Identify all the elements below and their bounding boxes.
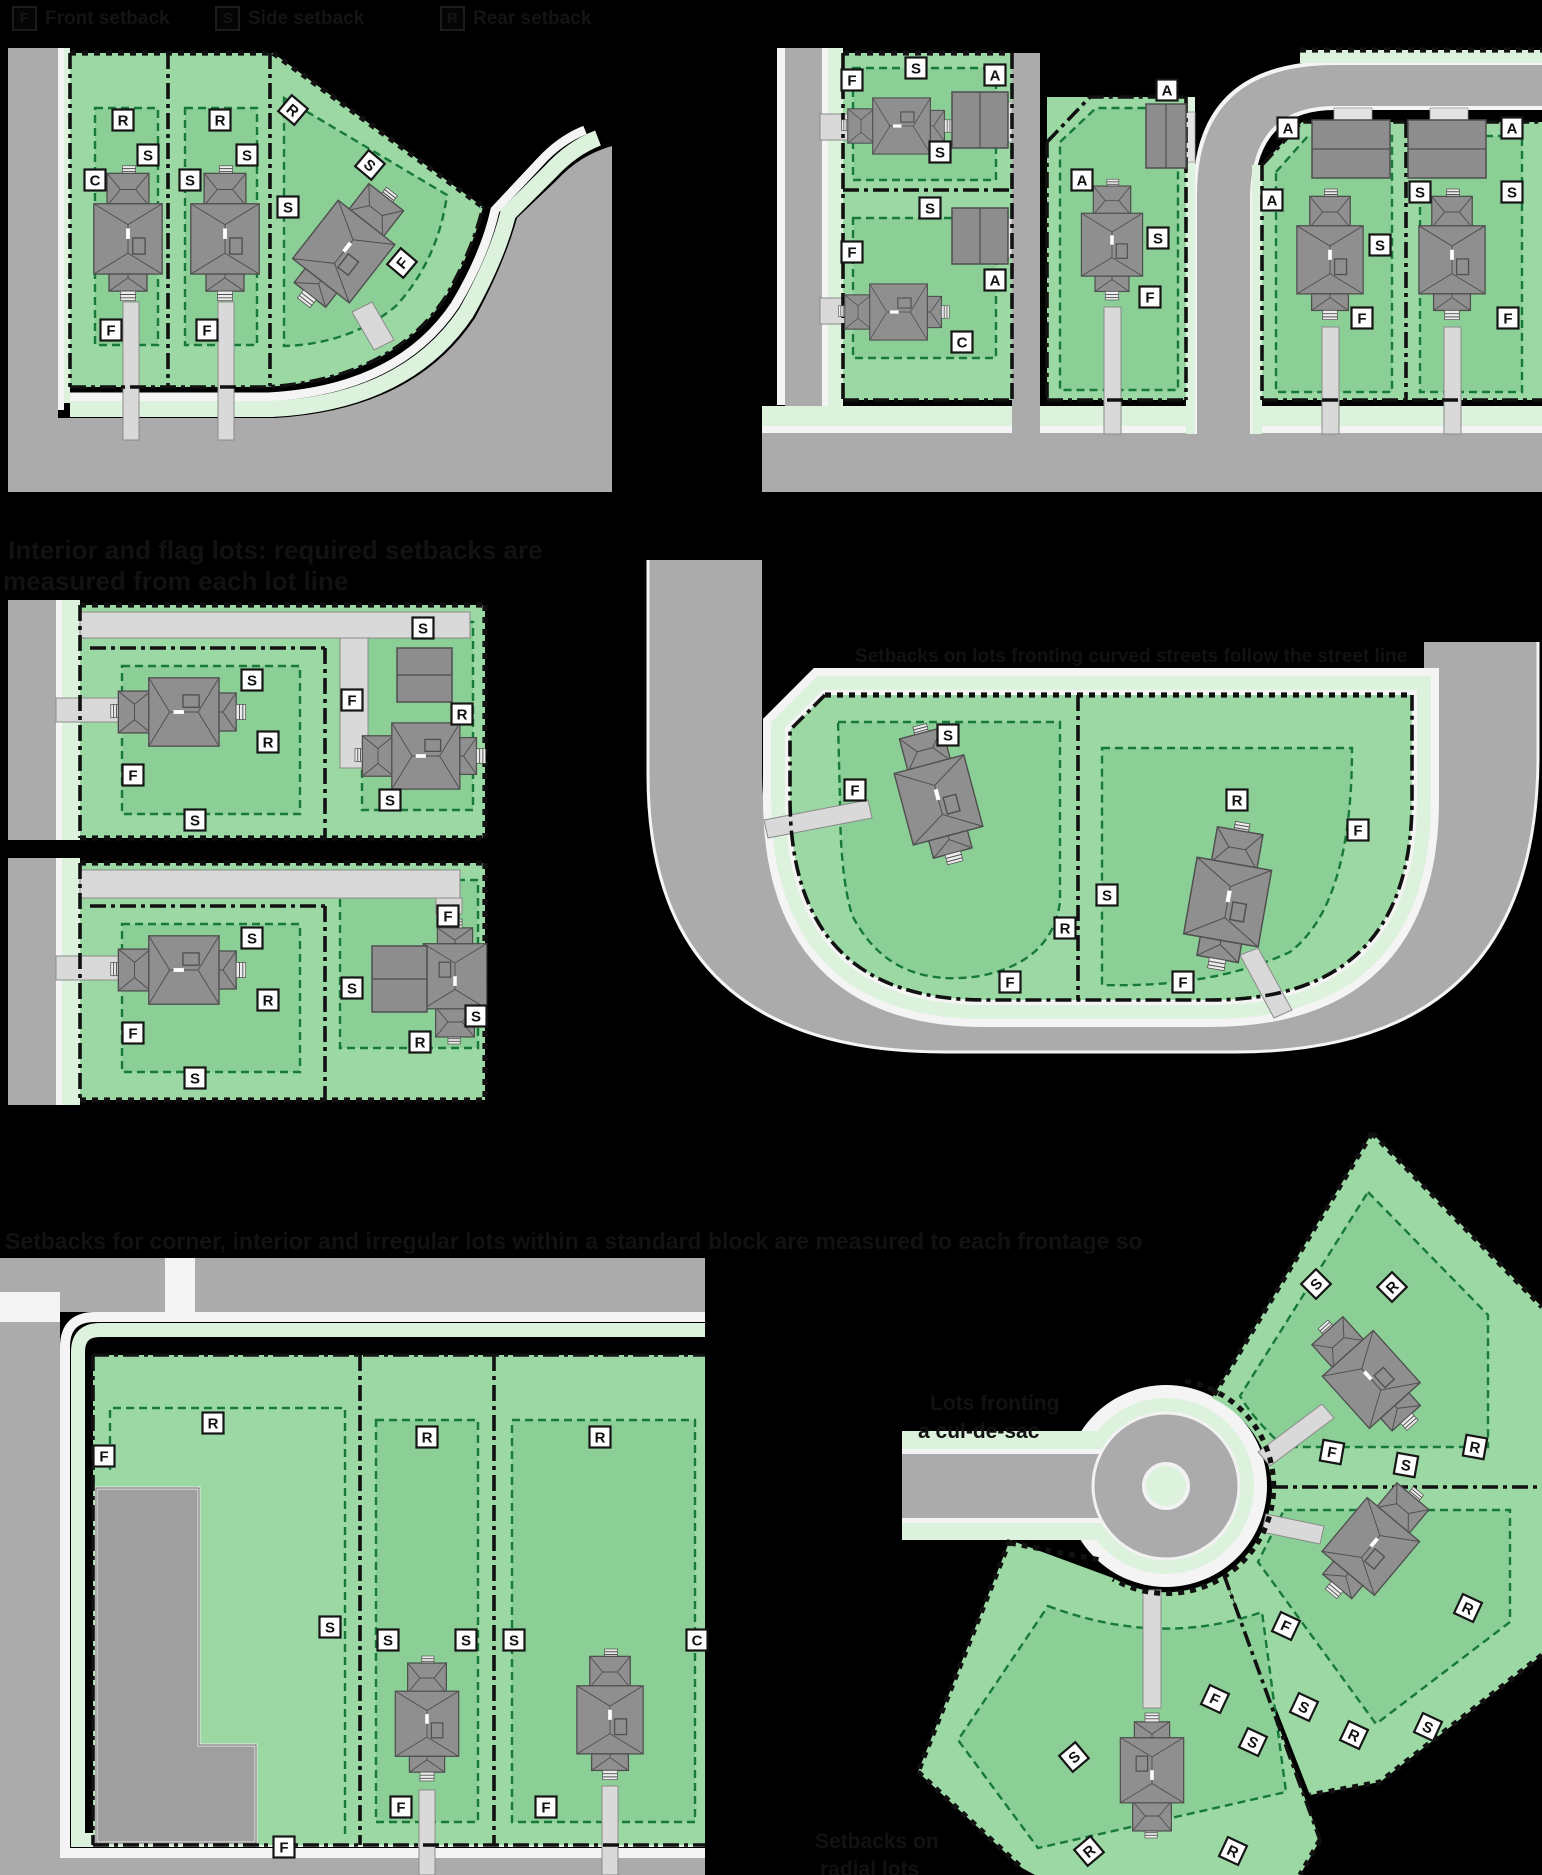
setback-label-A: A bbox=[985, 65, 1006, 86]
setback-label-F: F bbox=[342, 690, 363, 711]
setback-label-S: S bbox=[1370, 235, 1391, 256]
svg-text:F: F bbox=[99, 1449, 108, 1466]
svg-text:S: S bbox=[1415, 185, 1425, 202]
svg-text:S: S bbox=[943, 728, 953, 745]
setback-label-S: S bbox=[938, 725, 959, 746]
setback-label-F: F bbox=[1173, 972, 1194, 993]
setback-label-R: R bbox=[258, 732, 279, 753]
svg-text:R: R bbox=[415, 1035, 426, 1052]
svg-text:S: S bbox=[247, 931, 257, 948]
svg-text:R: R bbox=[1232, 793, 1243, 810]
svg-text:S: S bbox=[471, 1009, 481, 1026]
setback-label-F: F bbox=[123, 765, 144, 786]
svg-text:F: F bbox=[128, 768, 137, 785]
street-left bbox=[0, 1258, 60, 1875]
svg-text:F: F bbox=[106, 323, 115, 340]
legend-label: Front setback bbox=[45, 8, 170, 30]
svg-text:A: A bbox=[1507, 121, 1518, 138]
setback-label-F: F bbox=[842, 70, 863, 91]
street-left bbox=[8, 858, 56, 1105]
legend-label: Rear setback bbox=[473, 8, 591, 30]
setback-label-F: F bbox=[274, 1837, 295, 1858]
svg-text:R: R bbox=[263, 993, 274, 1010]
setback-label-S: S bbox=[185, 1068, 206, 1089]
setback-label-S: S bbox=[242, 670, 263, 691]
setback-label-F: F bbox=[101, 320, 122, 341]
setback-label-S: S bbox=[185, 810, 206, 831]
setback-label-R: R bbox=[258, 990, 279, 1011]
street-left bbox=[785, 48, 822, 434]
svg-text:F: F bbox=[1005, 975, 1014, 992]
setback-label-S: S bbox=[378, 1630, 399, 1651]
setback-label-F: F bbox=[391, 1797, 412, 1818]
setback-label-S: S bbox=[466, 1006, 487, 1027]
garage bbox=[372, 946, 427, 1012]
svg-text:F: F bbox=[202, 323, 211, 340]
svg-text:R: R bbox=[1060, 921, 1071, 938]
svg-text:S: S bbox=[185, 173, 195, 190]
street-left bbox=[8, 600, 56, 840]
svg-text:F: F bbox=[847, 73, 856, 90]
setback-label-R: R bbox=[417, 1427, 438, 1448]
legend-item-S: SSide setback bbox=[215, 6, 364, 31]
setback-label-F: F bbox=[1000, 972, 1021, 993]
svg-text:R: R bbox=[215, 113, 226, 130]
svg-text:R: R bbox=[422, 1430, 433, 1447]
setback-diagram-sheet: RSCFRSSFRSSFFSASSFACAASFAASFASSFSRFSSFRS… bbox=[0, 0, 1542, 1875]
setback-label-F: F bbox=[1352, 308, 1373, 329]
bulb-island bbox=[1144, 1464, 1188, 1508]
svg-text:A: A bbox=[990, 68, 1001, 85]
svg-text:S: S bbox=[325, 1620, 335, 1637]
setback-label-S: S bbox=[1148, 228, 1169, 249]
setback-label-S: S bbox=[1394, 1453, 1418, 1477]
svg-text:S: S bbox=[925, 201, 935, 218]
street-bottom bbox=[0, 1858, 705, 1875]
svg-text:F: F bbox=[850, 783, 859, 800]
setback-label-S: S bbox=[320, 1617, 341, 1638]
svg-text:S: S bbox=[1375, 238, 1385, 255]
svg-text:S: S bbox=[1153, 231, 1163, 248]
svg-text:A: A bbox=[990, 273, 1001, 290]
legend-item-R: RRear setback bbox=[440, 6, 591, 31]
setback-label-S: S bbox=[237, 145, 258, 166]
svg-text:S: S bbox=[190, 813, 200, 830]
svg-text:A: A bbox=[1077, 173, 1088, 190]
svg-text:F: F bbox=[1357, 311, 1366, 328]
svg-text:S: S bbox=[1102, 888, 1112, 905]
svg-text:R: R bbox=[457, 707, 468, 724]
svg-text:S: S bbox=[143, 148, 153, 165]
svg-text:S: S bbox=[911, 61, 921, 78]
setback-label-A: A bbox=[1502, 118, 1523, 139]
setback-label-F: F bbox=[845, 780, 866, 801]
setback-label-R: R bbox=[1055, 918, 1076, 939]
setback-label-A: A bbox=[1072, 170, 1093, 191]
setback-label-S: S bbox=[920, 198, 941, 219]
setback-label-F: F bbox=[197, 320, 218, 341]
setback-label-R: R bbox=[113, 110, 134, 131]
setback-label-R: R bbox=[410, 1032, 431, 1053]
setback-label-F: F bbox=[1498, 308, 1519, 329]
setback-label-A: A bbox=[1262, 190, 1283, 211]
svg-text:F: F bbox=[443, 909, 452, 926]
setback-label-F: F bbox=[1348, 820, 1369, 841]
legend-letter-box: F bbox=[12, 6, 37, 31]
legend-item-F: FFront setback bbox=[12, 6, 170, 31]
svg-text:C: C bbox=[957, 335, 968, 352]
svg-text:A: A bbox=[1267, 193, 1278, 210]
street-bottom bbox=[762, 433, 1542, 492]
legend: FFront setbackSSide setbackRRear setback bbox=[0, 6, 1542, 32]
setback-label-F: F bbox=[1140, 287, 1161, 308]
street-left bbox=[8, 48, 58, 440]
setback-label-F: F bbox=[842, 242, 863, 263]
garage bbox=[952, 208, 1008, 264]
setback-label-C: C bbox=[85, 170, 106, 191]
setback-label-S: S bbox=[1097, 885, 1118, 906]
diagram-canvas: RSCFRSSFRSSFFSASSFACAASFAASFASSFSRFSSFRS… bbox=[0, 0, 1542, 1875]
setback-label-F: F bbox=[536, 1797, 557, 1818]
garage bbox=[1312, 120, 1390, 178]
setback-label-S: S bbox=[380, 790, 401, 811]
svg-text:R: R bbox=[118, 113, 129, 130]
setback-label-R: R bbox=[590, 1427, 611, 1448]
setback-label-S: S bbox=[278, 197, 299, 218]
svg-text:F: F bbox=[279, 1840, 288, 1857]
setback-label-S: S bbox=[906, 58, 927, 79]
svg-text:C: C bbox=[90, 173, 101, 190]
garage bbox=[952, 92, 1008, 148]
garage bbox=[1146, 104, 1186, 168]
setback-label-F: F bbox=[123, 1023, 144, 1044]
setback-label-A: A bbox=[985, 270, 1006, 291]
setback-label-F: F bbox=[94, 1446, 115, 1467]
svg-text:A: A bbox=[1162, 83, 1173, 100]
svg-text:S: S bbox=[347, 981, 357, 998]
svg-text:R: R bbox=[595, 1430, 606, 1447]
setback-label-F: F bbox=[438, 906, 459, 927]
setback-label-S: S bbox=[504, 1630, 525, 1651]
legend-letter-box: S bbox=[215, 6, 240, 31]
svg-text:C: C bbox=[692, 1633, 703, 1650]
setback-label-R: R bbox=[203, 1413, 224, 1434]
setback-label-S: S bbox=[180, 170, 201, 191]
legend-letter-box: R bbox=[440, 6, 465, 31]
setback-label-S: S bbox=[242, 928, 263, 949]
setback-label-R: R bbox=[210, 110, 231, 131]
svg-text:F: F bbox=[128, 1026, 137, 1043]
svg-text:S: S bbox=[509, 1633, 519, 1650]
svg-text:F: F bbox=[1353, 823, 1362, 840]
svg-text:S: S bbox=[1507, 185, 1517, 202]
setback-label-S: S bbox=[456, 1630, 477, 1651]
svg-text:A: A bbox=[1283, 121, 1294, 138]
svg-text:F: F bbox=[396, 1800, 405, 1817]
setback-label-C: C bbox=[952, 332, 973, 353]
alley bbox=[1012, 53, 1040, 433]
svg-text:F: F bbox=[1145, 290, 1154, 307]
svg-text:S: S bbox=[461, 1633, 471, 1650]
setback-label-S: S bbox=[1410, 182, 1431, 203]
svg-text:F: F bbox=[541, 1800, 550, 1817]
svg-text:S: S bbox=[190, 1071, 200, 1088]
setback-label-R: R bbox=[1227, 790, 1248, 811]
svg-text:S: S bbox=[935, 145, 945, 162]
svg-text:S: S bbox=[418, 621, 428, 638]
setback-label-F: F bbox=[1320, 1440, 1344, 1464]
setback-label-S: S bbox=[138, 145, 159, 166]
setback-label-R: R bbox=[1463, 1435, 1487, 1459]
svg-text:R: R bbox=[208, 1416, 219, 1433]
svg-text:S: S bbox=[383, 1633, 393, 1650]
setback-label-A: A bbox=[1278, 118, 1299, 139]
setback-label-R: R bbox=[452, 704, 473, 725]
setback-label-S: S bbox=[1502, 182, 1523, 203]
svg-text:F: F bbox=[347, 693, 356, 710]
garage bbox=[397, 648, 452, 702]
svg-text:S: S bbox=[283, 200, 293, 217]
setback-label-S: S bbox=[342, 978, 363, 999]
setback-label-S: S bbox=[930, 142, 951, 163]
legend-label: Side setback bbox=[248, 8, 364, 30]
svg-text:S: S bbox=[385, 793, 395, 810]
garage bbox=[1408, 120, 1486, 178]
svg-text:F: F bbox=[1503, 311, 1512, 328]
svg-text:F: F bbox=[847, 245, 856, 262]
setback-label-S: S bbox=[413, 618, 434, 639]
setback-label-C: C bbox=[687, 1630, 708, 1651]
street-top bbox=[0, 1258, 705, 1312]
svg-text:F: F bbox=[1178, 975, 1187, 992]
svg-text:S: S bbox=[247, 673, 257, 690]
svg-text:R: R bbox=[263, 735, 274, 752]
svg-text:S: S bbox=[242, 148, 252, 165]
setback-label-A: A bbox=[1157, 80, 1178, 101]
